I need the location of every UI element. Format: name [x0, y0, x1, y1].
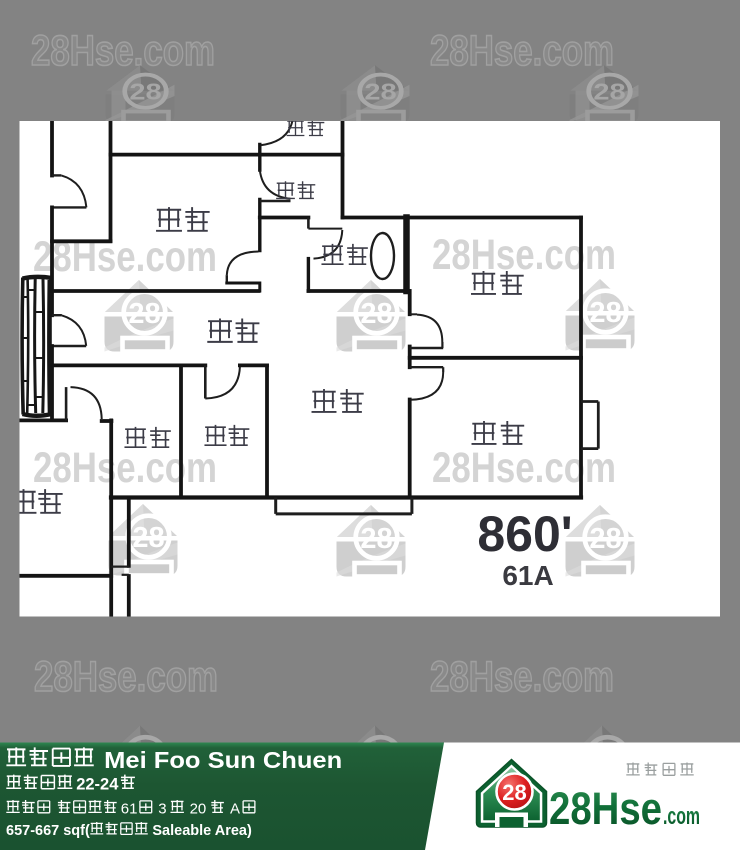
svg-text:28: 28: [502, 780, 526, 805]
svg-text:28Hse.com: 28Hse.com: [432, 231, 616, 279]
svg-text:Saleable Area): Saleable Area): [152, 823, 252, 839]
svg-text:28Hse.com: 28Hse.com: [432, 444, 616, 492]
svg-text:3: 3: [158, 801, 166, 818]
svg-text:28Hse.com: 28Hse.com: [33, 444, 217, 492]
svg-text:A: A: [230, 801, 240, 818]
svg-text:657-667 sqf(: 657-667 sqf(: [6, 823, 90, 839]
svg-text:28Hse.com: 28Hse.com: [430, 653, 614, 701]
svg-text:20: 20: [190, 801, 207, 818]
svg-text:28Hse: 28Hse: [549, 783, 662, 834]
svg-text:61A: 61A: [502, 560, 553, 591]
svg-text:Mei Foo Sun Chuen: Mei Foo Sun Chuen: [104, 747, 342, 773]
svg-text:28Hse.com: 28Hse.com: [430, 27, 614, 75]
svg-text:61: 61: [121, 801, 138, 818]
svg-text:28Hse.com: 28Hse.com: [31, 27, 215, 75]
svg-text:28Hse.com: 28Hse.com: [34, 653, 218, 701]
svg-text:22-24: 22-24: [76, 776, 119, 794]
svg-text:860': 860': [477, 506, 572, 562]
svg-text:.com: .com: [663, 803, 700, 830]
